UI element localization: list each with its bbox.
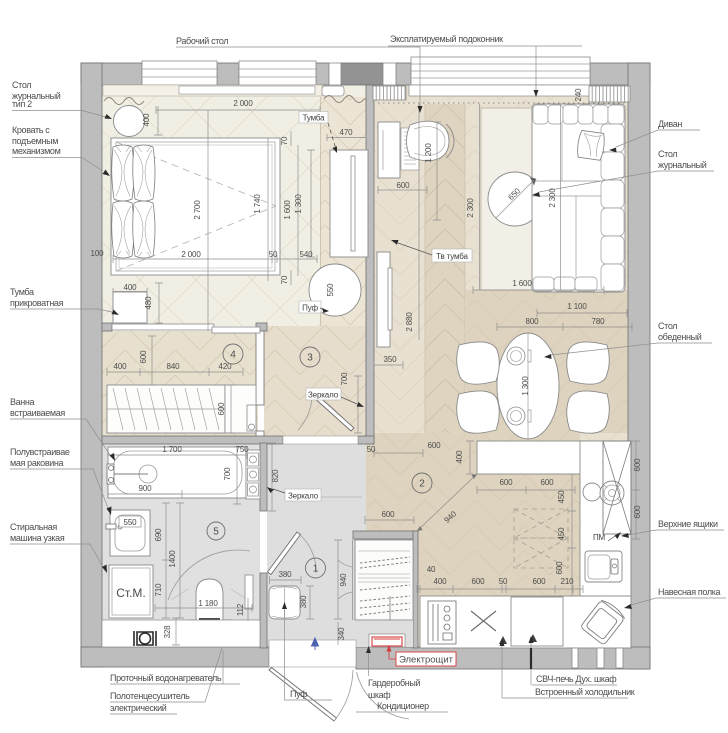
svg-text:2 700: 2 700 — [193, 200, 202, 220]
svg-text:600: 600 — [472, 577, 486, 586]
svg-text:СВЧ-печь Дух. шкаф: СВЧ-печь Дух. шкаф — [536, 674, 617, 684]
svg-text:600: 600 — [533, 577, 547, 586]
svg-text:340: 340 — [337, 627, 346, 641]
svg-text:мая раковина: мая раковина — [10, 458, 64, 468]
svg-text:журнальный: журнальный — [658, 160, 707, 170]
svg-text:112: 112 — [236, 603, 245, 616]
svg-text:600: 600 — [139, 350, 148, 364]
svg-text:2 300: 2 300 — [548, 188, 557, 208]
svg-text:2 880: 2 880 — [405, 312, 414, 332]
svg-text:Эксплатируемый подоконник: Эксплатируемый подоконник — [390, 34, 503, 44]
svg-text:1 700: 1 700 — [162, 445, 182, 454]
svg-text:2 300: 2 300 — [466, 198, 475, 218]
svg-text:600: 600 — [428, 441, 442, 450]
svg-text:600: 600 — [633, 458, 642, 472]
svg-text:электрический: электрический — [110, 703, 167, 713]
svg-text:ПМ: ПМ — [593, 533, 606, 542]
svg-text:тип 2: тип 2 — [12, 99, 32, 109]
svg-text:328: 328 — [163, 625, 172, 639]
svg-text:Полувстраивае: Полувстраивае — [10, 447, 70, 457]
svg-text:50: 50 — [499, 577, 508, 586]
svg-text:Навесная полка: Навесная полка — [658, 587, 721, 597]
svg-text:450: 450 — [557, 527, 566, 541]
svg-text:400: 400 — [455, 450, 464, 464]
svg-text:1 600: 1 600 — [283, 200, 292, 220]
svg-text:400: 400 — [124, 283, 138, 292]
svg-text:800: 800 — [526, 317, 540, 326]
svg-text:Пуф: Пуф — [302, 304, 318, 313]
svg-text:600: 600 — [555, 561, 564, 575]
svg-text:600: 600 — [217, 402, 226, 416]
svg-text:780: 780 — [592, 317, 606, 326]
svg-text:Зеркало: Зеркало — [308, 391, 339, 400]
svg-text:550: 550 — [326, 283, 335, 297]
svg-text:2 000: 2 000 — [181, 250, 201, 259]
svg-text:50: 50 — [269, 250, 278, 259]
svg-text:Пуф: Пуф — [290, 689, 308, 699]
svg-text:подъемным: подъемным — [12, 136, 58, 146]
svg-text:Ванна: Ванна — [10, 397, 35, 407]
svg-text:Тумба: Тумба — [10, 287, 34, 297]
svg-text:690: 690 — [154, 528, 163, 542]
svg-text:600: 600 — [382, 510, 396, 519]
svg-text:550: 550 — [124, 518, 138, 527]
svg-text:40: 40 — [427, 565, 436, 574]
svg-text:700: 700 — [223, 467, 232, 481]
svg-text:5: 5 — [213, 527, 219, 538]
svg-text:820: 820 — [271, 469, 280, 483]
svg-text:Верхние ящики: Верхние ящики — [658, 519, 718, 529]
svg-text:600: 600 — [500, 478, 514, 487]
svg-text:380: 380 — [299, 595, 308, 609]
svg-text:210: 210 — [561, 577, 575, 586]
svg-text:машина узкая: машина узкая — [10, 533, 65, 543]
svg-text:механизмом: механизмом — [12, 146, 61, 156]
svg-text:600: 600 — [633, 505, 642, 519]
svg-text:700: 700 — [340, 372, 349, 386]
svg-text:100: 100 — [91, 249, 105, 258]
svg-text:1 600: 1 600 — [512, 279, 532, 288]
svg-text:50: 50 — [367, 445, 376, 454]
svg-text:1400: 1400 — [168, 550, 177, 568]
svg-text:70: 70 — [280, 275, 289, 284]
svg-text:1 740: 1 740 — [253, 194, 262, 214]
svg-text:Тумба: Тумба — [303, 114, 326, 123]
svg-text:1 300: 1 300 — [521, 376, 530, 396]
svg-text:1 100: 1 100 — [567, 302, 587, 311]
svg-text:70: 70 — [280, 136, 289, 145]
svg-text:Стиральная: Стиральная — [10, 522, 57, 532]
svg-text:2 000: 2 000 — [233, 99, 253, 108]
svg-text:1 300: 1 300 — [294, 194, 303, 214]
svg-text:400: 400 — [142, 113, 151, 127]
svg-text:1 180: 1 180 — [198, 599, 218, 608]
svg-text:710: 710 — [154, 583, 163, 597]
svg-text:1 200: 1 200 — [424, 143, 433, 163]
svg-text:Кондиционер: Кондиционер — [377, 701, 429, 711]
svg-text:600: 600 — [397, 181, 411, 190]
svg-text:Гардеробный: Гардеробный — [368, 678, 421, 688]
svg-text:2: 2 — [419, 479, 425, 490]
svg-text:4: 4 — [230, 350, 236, 361]
svg-text:Электрощит: Электрощит — [399, 655, 454, 666]
svg-text:600: 600 — [541, 478, 555, 487]
svg-text:прикроватная: прикроватная — [10, 298, 64, 308]
svg-text:1: 1 — [313, 564, 319, 575]
svg-text:Стол: Стол — [658, 149, 677, 159]
svg-text:400: 400 — [114, 362, 128, 371]
svg-text:Проточный водонагреватель: Проточный водонагреватель — [110, 673, 222, 683]
svg-text:840: 840 — [167, 362, 181, 371]
svg-text:Рабочий стол: Рабочий стол — [176, 36, 228, 46]
svg-text:Встроенный холодильник: Встроенный холодильник — [535, 687, 635, 697]
svg-text:встраиваемая: встраиваемая — [10, 408, 65, 418]
svg-text:750: 750 — [236, 445, 250, 454]
svg-text:Диван: Диван — [658, 119, 682, 129]
svg-text:380: 380 — [279, 570, 293, 579]
svg-text:Стол: Стол — [658, 321, 677, 331]
svg-text:3: 3 — [307, 353, 313, 364]
svg-text:обеденный: обеденный — [658, 332, 702, 342]
svg-text:480: 480 — [144, 296, 153, 310]
svg-text:240: 240 — [574, 88, 583, 102]
svg-text:400: 400 — [434, 577, 448, 586]
svg-text:шкаф: шкаф — [368, 690, 391, 700]
svg-text:900: 900 — [139, 484, 153, 493]
svg-text:Полотенцесушитель: Полотенцесушитель — [110, 691, 190, 701]
svg-text:Ст.М.: Ст.М. — [116, 586, 146, 600]
svg-text:540: 540 — [300, 250, 314, 259]
svg-text:Стол: Стол — [12, 80, 31, 90]
svg-text:470: 470 — [340, 128, 354, 137]
svg-text:350: 350 — [384, 355, 398, 364]
svg-text:Тв тумба: Тв тумба — [436, 252, 468, 261]
svg-text:940: 940 — [339, 573, 348, 587]
svg-text:Кровать с: Кровать с — [12, 125, 50, 135]
svg-text:450: 450 — [557, 490, 566, 504]
svg-text:Зеркало: Зеркало — [288, 492, 319, 501]
